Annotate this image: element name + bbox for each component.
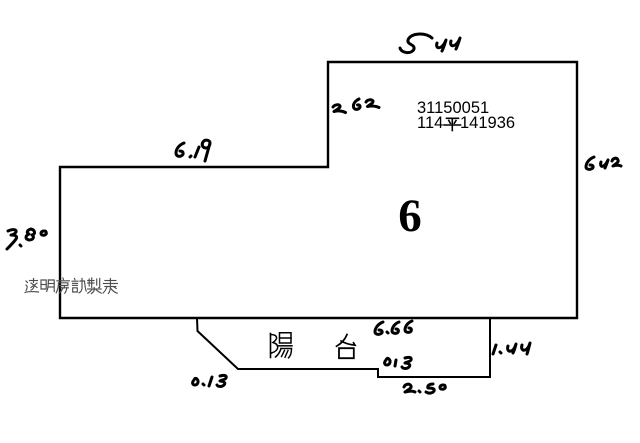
svg-text:6: 6 bbox=[398, 190, 422, 242]
svg-text:141936: 141936 bbox=[460, 114, 515, 132]
svg-text:114: 114 bbox=[417, 114, 443, 132]
